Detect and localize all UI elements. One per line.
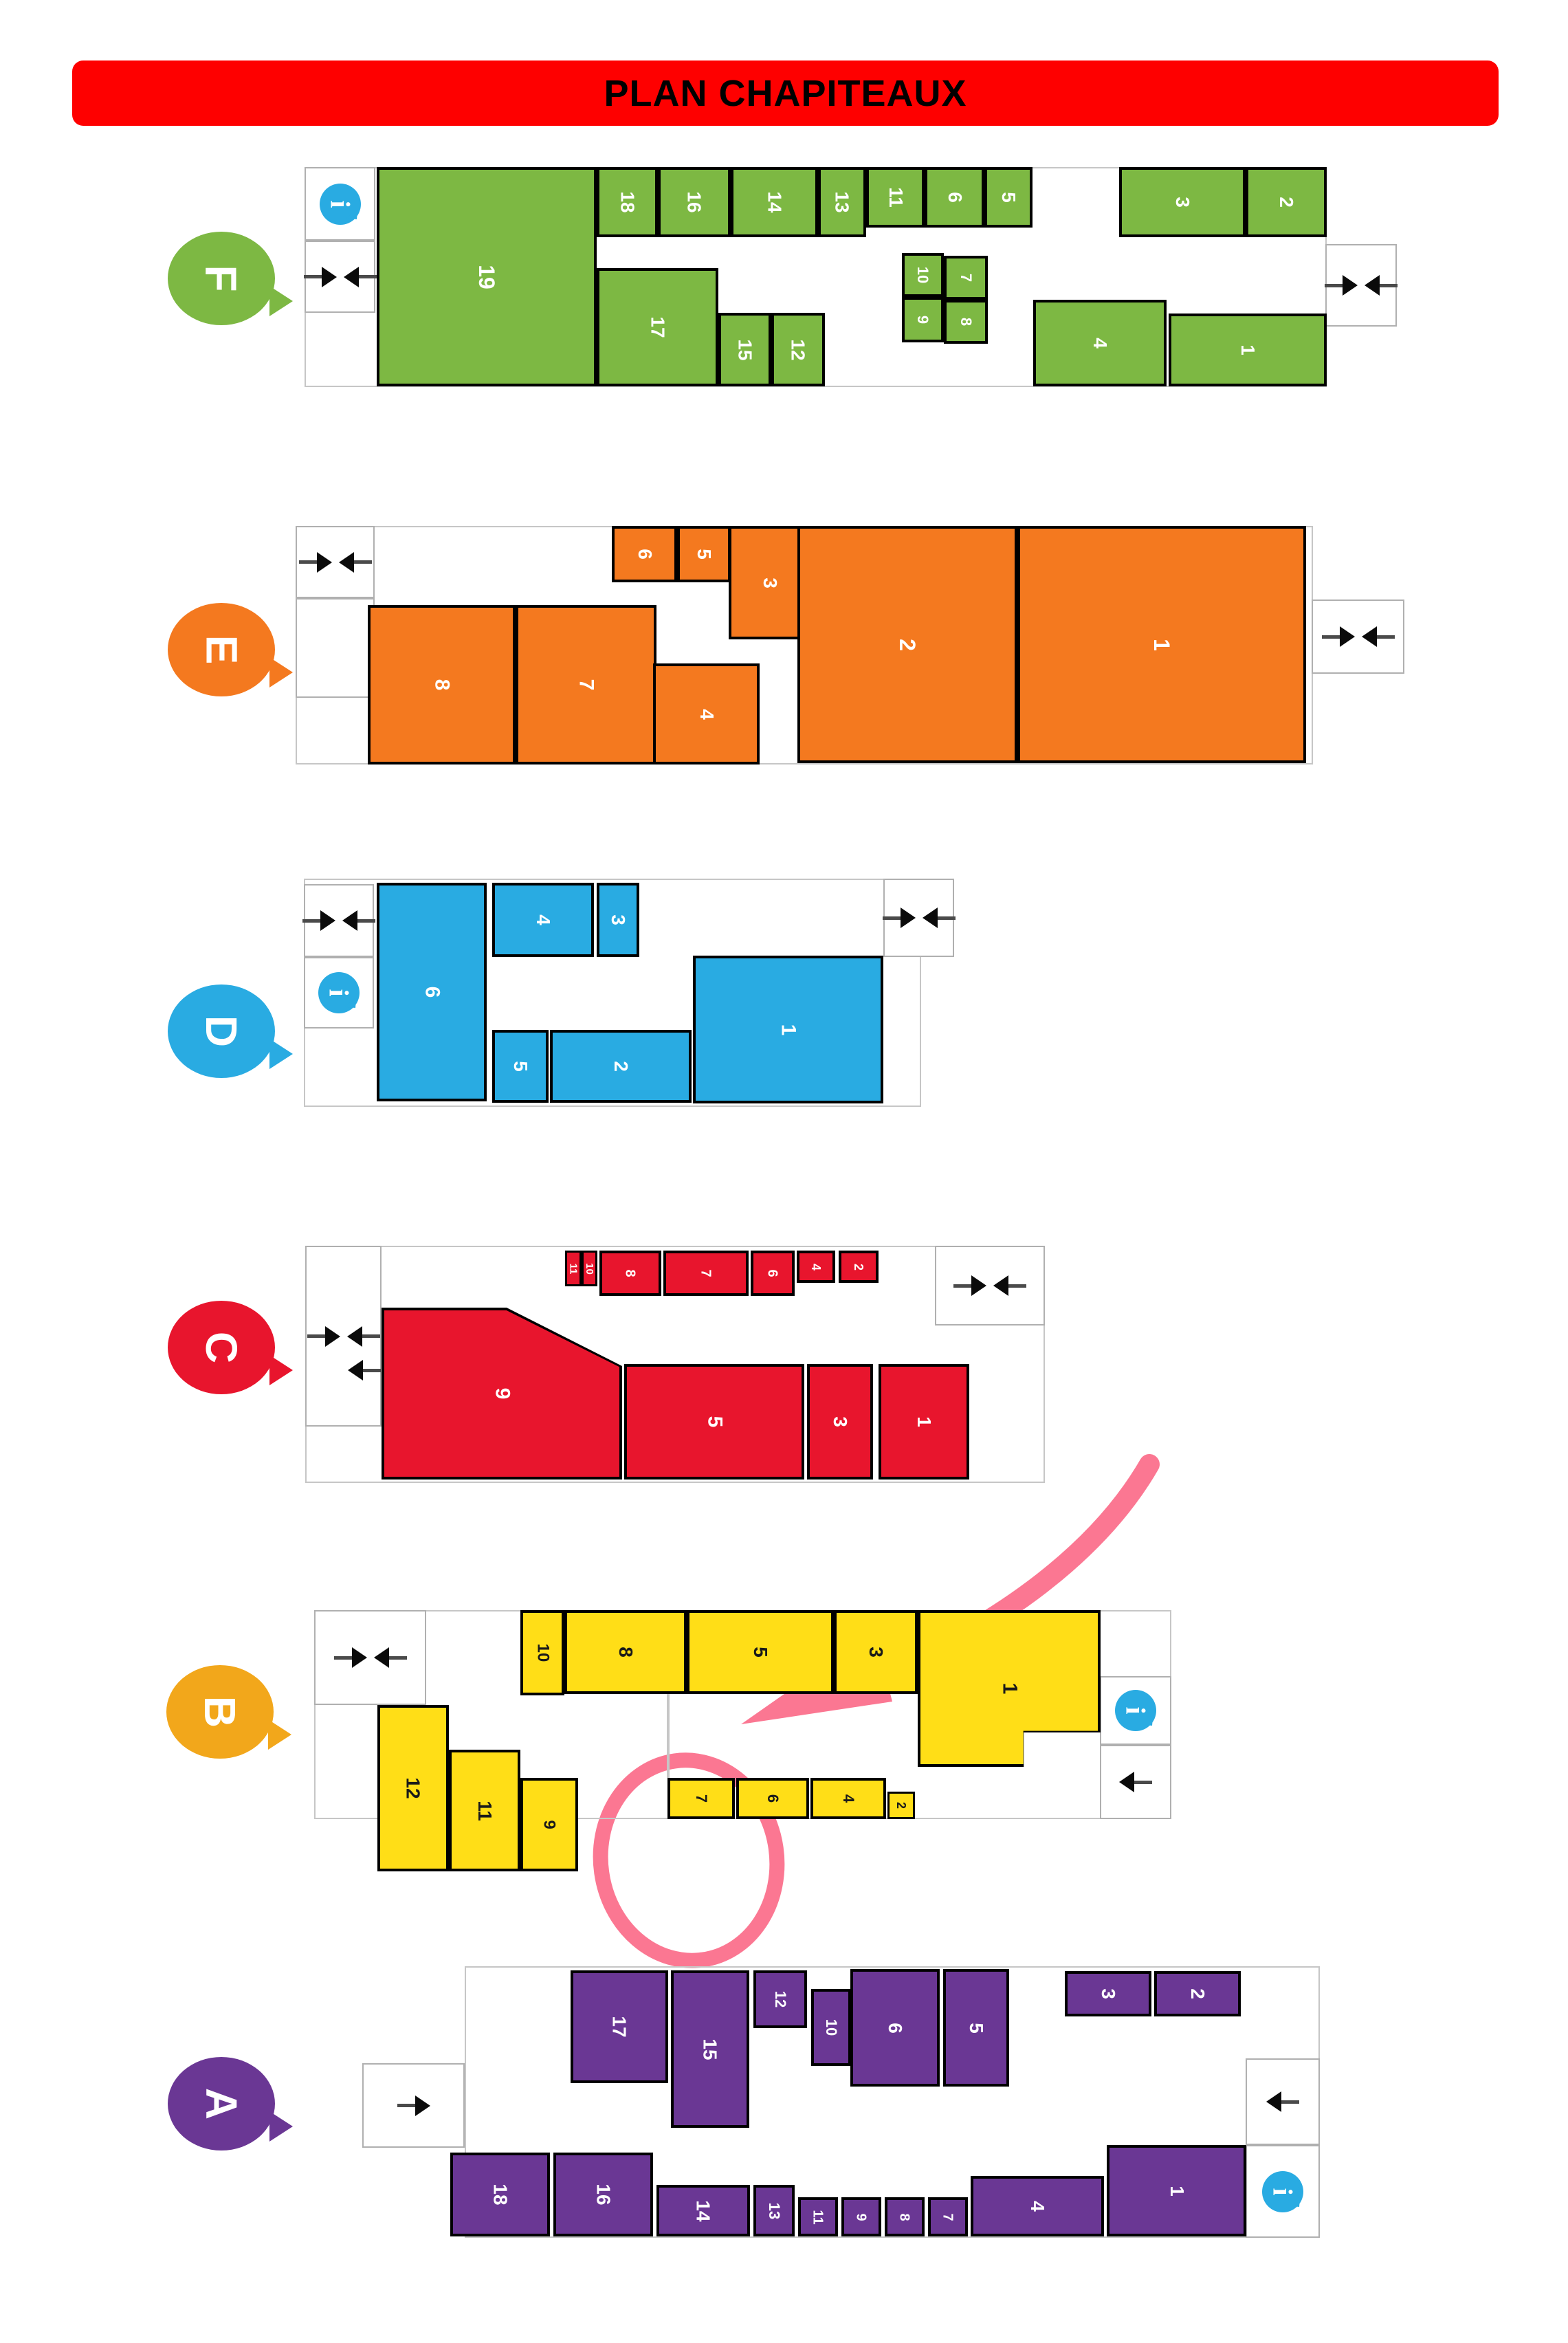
arrow-box	[1325, 244, 1397, 327]
arrow-box	[1100, 1745, 1171, 1819]
block-E-4: 4	[653, 663, 760, 764]
block-F-10: 10	[902, 253, 944, 297]
block-number: 10	[824, 2019, 839, 2036]
block-number: 2	[896, 639, 918, 651]
block-C-11: 11	[565, 1251, 582, 1286]
arrow-head	[339, 552, 354, 573]
block-A-17: 17	[571, 1970, 668, 2083]
page-title: PLAN CHAPITEAUX	[72, 60, 1499, 126]
block-number: 17	[610, 2016, 629, 2037]
arrow-head	[1343, 275, 1358, 296]
arrow-head	[325, 1326, 340, 1347]
block-C-6: 6	[751, 1251, 795, 1296]
arrow-tail	[397, 2104, 415, 2107]
block-D-5: 5	[492, 1030, 549, 1103]
block-number: 16	[594, 2183, 613, 2205]
block-number: 6	[634, 549, 654, 560]
info-box: i	[1100, 1676, 1171, 1745]
block-A-16: 16	[553, 2153, 653, 2236]
block-A-13: 13	[753, 2185, 795, 2236]
balloon-F: F	[168, 232, 275, 325]
arrow-right-icon	[1322, 626, 1355, 647]
block-C-1: 1	[879, 1364, 969, 1479]
arrow-tail	[1281, 2100, 1299, 2104]
info-icon: i	[318, 972, 360, 1013]
arrow-left-icon	[348, 1360, 381, 1380]
info-box: i	[304, 957, 374, 1028]
arrow-tail	[1325, 284, 1343, 287]
arrow-head	[374, 1647, 389, 1668]
arrow-head	[322, 267, 337, 287]
empty-box	[296, 598, 375, 698]
block-number: 10	[534, 1644, 551, 1662]
block-E-5: 5	[677, 526, 731, 582]
block-F-8: 8	[944, 300, 988, 344]
block-number: 8	[898, 2213, 912, 2221]
block-number: 1	[999, 1683, 1019, 1695]
block-number: 7	[941, 2213, 955, 2221]
block-E-8: 8	[368, 605, 516, 764]
balloon-B: B	[166, 1665, 274, 1759]
arrow-tail	[357, 919, 375, 923]
block-C-7: 7	[663, 1251, 749, 1296]
arrow-box	[1246, 2058, 1320, 2145]
arrow-head	[993, 1275, 1008, 1296]
block-A-5: 5	[943, 1969, 1009, 2087]
block-F-6: 6	[925, 167, 984, 228]
arrow-box	[883, 879, 954, 957]
arrow-tail	[938, 916, 956, 920]
block-number: 4	[696, 709, 716, 720]
block-number: 10	[915, 267, 930, 283]
balloon-tail	[269, 2111, 293, 2142]
block-number: 5	[694, 549, 714, 560]
arrow-tail	[363, 1369, 381, 1372]
arrow-box	[362, 2063, 465, 2148]
arrow-tail	[362, 1334, 380, 1338]
info-box: i	[305, 167, 375, 241]
arrow-tail	[1380, 284, 1398, 287]
block-F-18: 18	[597, 167, 658, 237]
block-number: 3	[1098, 1988, 1118, 1999]
block-B-9: 9	[520, 1778, 578, 1871]
block-A-14: 14	[656, 2185, 750, 2236]
block-number: 3	[1173, 197, 1192, 208]
block-F-1: 1	[1169, 313, 1327, 386]
arrow-left-icon	[344, 267, 377, 287]
row-letter-E: E	[199, 635, 243, 665]
block-D-1: 1	[693, 956, 883, 1103]
arrow-right-icon	[397, 2095, 430, 2116]
arrow-right-icon	[304, 267, 337, 287]
block-A-12: 12	[753, 1970, 807, 2028]
block-B-7: 7	[667, 1778, 735, 1819]
block-B-2: 2	[887, 1792, 915, 1819]
arrow-tail	[1322, 635, 1340, 639]
block-F-12: 12	[771, 313, 825, 386]
block-number: 7	[958, 274, 973, 282]
block-number: 15	[700, 2038, 720, 2060]
block-A-1: 1	[1107, 2145, 1246, 2236]
arrow-right-icon	[883, 907, 916, 928]
block-number: 4	[841, 1794, 856, 1803]
block-number: 5	[751, 1647, 770, 1658]
block-number: 1	[1238, 344, 1257, 355]
block-F-13: 13	[818, 167, 866, 237]
block-number: 8	[623, 1269, 637, 1277]
block-number: 3	[760, 577, 780, 588]
arrow-head	[1340, 626, 1355, 647]
block-number: 3	[830, 1416, 850, 1427]
arrow-left-icon	[347, 1326, 380, 1347]
arrow-left-icon	[374, 1647, 407, 1668]
arrow-head	[1266, 2091, 1281, 2112]
block-number: 11	[811, 2210, 825, 2224]
balloon-tail	[269, 657, 293, 687]
row-letter-D: D	[199, 1015, 243, 1047]
balloon-tail	[269, 286, 293, 316]
block-number: 11	[885, 187, 905, 208]
arrow-tail	[299, 560, 317, 564]
arrow-tail	[1377, 635, 1395, 639]
block-C-2: 2	[839, 1251, 879, 1283]
block-number: 5	[999, 192, 1018, 203]
block-number: 7	[576, 679, 597, 691]
block-E-1: 1	[1017, 526, 1306, 763]
block-F-15: 15	[718, 313, 771, 386]
block-A-6: 6	[850, 1969, 940, 2087]
block-F-7: 7	[944, 256, 988, 300]
arrow-box	[935, 1246, 1045, 1325]
block-number: 9	[916, 316, 931, 324]
arrow-left-icon	[348, 1360, 381, 1380]
block-A-11: 11	[798, 2197, 838, 2236]
block-B-10: 10	[520, 1610, 564, 1695]
info-icon-letter: i	[1122, 1706, 1149, 1714]
arrow-tail	[307, 1334, 325, 1338]
block-F-5: 5	[984, 167, 1033, 228]
block-F-3: 3	[1119, 167, 1246, 237]
block-B-12: 12	[377, 1705, 449, 1871]
block-number: 18	[618, 191, 637, 212]
block-B-3: 3	[834, 1610, 918, 1694]
block-C-10: 10	[582, 1251, 597, 1286]
block-B-5: 5	[687, 1610, 834, 1694]
block-number: 6	[765, 1794, 780, 1803]
block-number: 14	[765, 191, 784, 212]
info-box: i	[1246, 2145, 1320, 2238]
arrow-head	[342, 910, 357, 931]
balloon-C: C	[168, 1301, 275, 1394]
block-C-4: 4	[797, 1251, 835, 1283]
block-F-14: 14	[731, 167, 818, 237]
arrow-box	[304, 884, 374, 957]
arrow-head	[923, 907, 938, 928]
arrow-box	[296, 526, 375, 598]
arrow-left-icon	[1266, 2091, 1299, 2112]
arrow-head	[1362, 626, 1377, 647]
arrow-tail	[304, 275, 322, 278]
block-number: 6	[885, 2023, 905, 2034]
info-icon-letter: i	[1269, 2188, 1296, 2195]
block-C-3: 3	[807, 1364, 873, 1479]
block-number: 3	[866, 1647, 885, 1658]
block-number: 2	[1277, 197, 1296, 208]
block-number: 1	[1151, 639, 1173, 651]
info-icon: i	[1262, 2171, 1303, 2212]
block-number: 2	[611, 1061, 630, 1072]
block-C-5: 5	[624, 1364, 804, 1479]
block-A-4: 4	[971, 2176, 1104, 2236]
arrow-head	[971, 1275, 986, 1296]
block-F-19: 19	[377, 167, 597, 386]
arrow-head	[348, 1360, 363, 1380]
arrow-right-icon	[302, 910, 335, 931]
block-number: 11	[568, 1263, 578, 1274]
block-F-17: 17	[597, 268, 718, 386]
arrow-tail	[1008, 1284, 1026, 1288]
plan-canvas: PLAN CHAPITEAUX iF1918161413116532107981…	[0, 0, 1568, 2343]
block-number: 12	[773, 1991, 788, 2007]
block-B-11: 11	[449, 1750, 520, 1871]
arrow-head	[1365, 275, 1380, 296]
block-B-6: 6	[736, 1778, 809, 1819]
arrow-tail	[1134, 1781, 1152, 1784]
block-number: 2	[852, 1263, 865, 1270]
block-A-18: 18	[450, 2153, 550, 2236]
arrow-tail	[334, 1656, 352, 1660]
block-number: 16	[685, 191, 704, 212]
block-A-9: 9	[841, 2197, 881, 2236]
block-number: 9	[541, 1820, 557, 1829]
block-number: 1	[778, 1024, 799, 1035]
block-F-16: 16	[658, 167, 731, 237]
block-number: 18	[491, 2183, 510, 2205]
arrow-left-icon	[342, 910, 375, 931]
row-letter-F: F	[199, 265, 243, 291]
block-number: 4	[1028, 2201, 1047, 2212]
block-number: 6	[421, 987, 442, 998]
block-A-8: 8	[885, 2197, 925, 2236]
block-number: 3	[608, 914, 628, 925]
block-D-6: 6	[377, 883, 487, 1101]
arrow-box	[305, 1246, 382, 1427]
block-E-2: 2	[797, 526, 1017, 763]
block-number: 9	[492, 1388, 512, 1400]
block-number: 8	[432, 679, 452, 691]
info-icon: i	[1115, 1690, 1156, 1731]
block-number: 9	[854, 2213, 868, 2221]
block-number: 12	[788, 339, 808, 360]
arrow-tail	[883, 916, 901, 920]
arrow-box	[305, 241, 375, 313]
block-number: 15	[736, 339, 755, 360]
block-F-2: 2	[1246, 167, 1327, 237]
row-letter-A: A	[199, 2088, 243, 2120]
balloon-tail	[269, 1039, 293, 1069]
block-D-4: 4	[492, 883, 594, 957]
row-letter-B: B	[198, 1696, 242, 1728]
block-F-4: 4	[1033, 300, 1167, 386]
block-number: 4	[810, 1263, 822, 1270]
block-number: 2	[1188, 1988, 1207, 1999]
block-number: 1	[914, 1416, 934, 1427]
arrow-right-icon	[953, 1275, 986, 1296]
balloon-tail	[268, 1719, 291, 1750]
block-F-11: 11	[866, 167, 925, 228]
arrow-left-icon	[993, 1275, 1026, 1296]
arrow-tail	[953, 1284, 971, 1288]
balloon-tail	[269, 1355, 293, 1385]
balloon-D: D	[168, 984, 275, 1078]
arrow-head	[1119, 1772, 1134, 1792]
arrow-head	[415, 2095, 430, 2116]
arrow-right-icon	[299, 552, 332, 573]
block-number: 2	[895, 1802, 907, 1809]
arrow-box	[314, 1610, 426, 1705]
row-letter-C: C	[199, 1332, 243, 1363]
block-number: 1	[1167, 2186, 1186, 2197]
block-number: 13	[832, 191, 852, 212]
block-number: 17	[648, 316, 667, 338]
block-E-7: 7	[516, 605, 656, 764]
row-B-outline	[667, 1694, 670, 1778]
block-number: 8	[958, 318, 973, 326]
block-F-9: 9	[902, 297, 944, 342]
arrow-head	[347, 1326, 362, 1347]
block-number: 6	[766, 1269, 780, 1277]
block-number: 14	[694, 2200, 713, 2221]
arrow-right-icon	[1325, 275, 1358, 296]
arrow-tail	[389, 1656, 407, 1660]
block-A-3: 3	[1065, 1971, 1151, 2016]
arrow-head	[344, 267, 359, 287]
balloon-E: E	[168, 603, 275, 696]
block-number: 6	[945, 192, 964, 203]
arrow-tail	[359, 275, 377, 278]
block-number: 5	[967, 2023, 986, 2034]
info-icon-letter: i	[325, 989, 353, 996]
block-A-2: 2	[1154, 1971, 1241, 2016]
block-number: 4	[533, 914, 553, 925]
arrow-right-icon	[307, 1326, 340, 1347]
arrow-head	[352, 1647, 367, 1668]
arrow-head	[317, 552, 332, 573]
arrow-left-icon	[1119, 1772, 1152, 1792]
block-number: 12	[404, 1777, 423, 1798]
arrow-left-icon	[339, 552, 372, 573]
info-icon: i	[320, 184, 361, 225]
arrow-left-icon	[923, 907, 956, 928]
block-number: 13	[766, 2202, 782, 2219]
block-number: 19	[476, 265, 498, 289]
block-number: 10	[584, 1263, 595, 1275]
arrow-head	[320, 910, 335, 931]
block-A-10: 10	[811, 1989, 851, 2066]
block-number: 7	[699, 1269, 713, 1277]
arrow-head	[901, 907, 916, 928]
block-number: 4	[1090, 338, 1109, 349]
block-number: 5	[704, 1416, 725, 1428]
block-number: 5	[511, 1061, 530, 1072]
block-E-6: 6	[612, 526, 677, 582]
arrow-tail	[302, 919, 320, 923]
block-D-3: 3	[597, 883, 639, 957]
arrow-right-icon	[334, 1647, 367, 1668]
block-D-2: 2	[550, 1030, 692, 1103]
block-B-4: 4	[810, 1778, 886, 1819]
block-number: 8	[616, 1647, 635, 1658]
arrow-left-icon	[1365, 275, 1398, 296]
block-A-15: 15	[671, 1970, 749, 2128]
info-icon-letter: i	[327, 200, 354, 208]
block-C-8: 8	[599, 1251, 661, 1296]
block-A-7: 7	[928, 2197, 968, 2236]
arrow-tail	[354, 560, 372, 564]
block-number: 7	[694, 1794, 709, 1803]
arrow-box	[1312, 599, 1404, 674]
block-B-8: 8	[564, 1610, 687, 1694]
arrow-left-icon	[1362, 626, 1395, 647]
block-number: 11	[475, 1801, 494, 1821]
balloon-A: A	[168, 2057, 275, 2150]
